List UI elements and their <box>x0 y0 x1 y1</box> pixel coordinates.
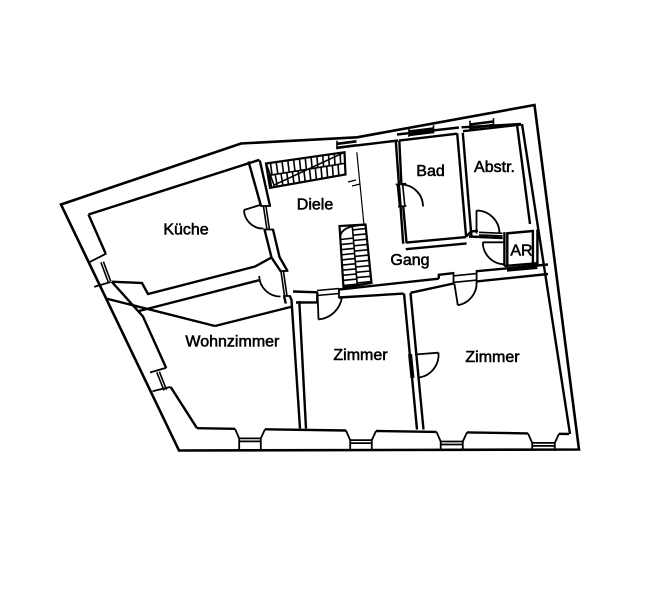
svg-text:Bad: Bad <box>416 163 444 180</box>
svg-text:Zimmer: Zimmer <box>333 347 388 364</box>
svg-text:Zimmer: Zimmer <box>465 349 520 366</box>
svg-text:Küche: Küche <box>163 222 208 239</box>
svg-text:AR: AR <box>510 243 532 260</box>
svg-text:Diele: Diele <box>297 197 334 214</box>
svg-text:Wohnzimmer: Wohnzimmer <box>185 334 280 351</box>
svg-text:Gang: Gang <box>390 252 429 269</box>
svg-text:Abstr.: Abstr. <box>474 159 515 176</box>
